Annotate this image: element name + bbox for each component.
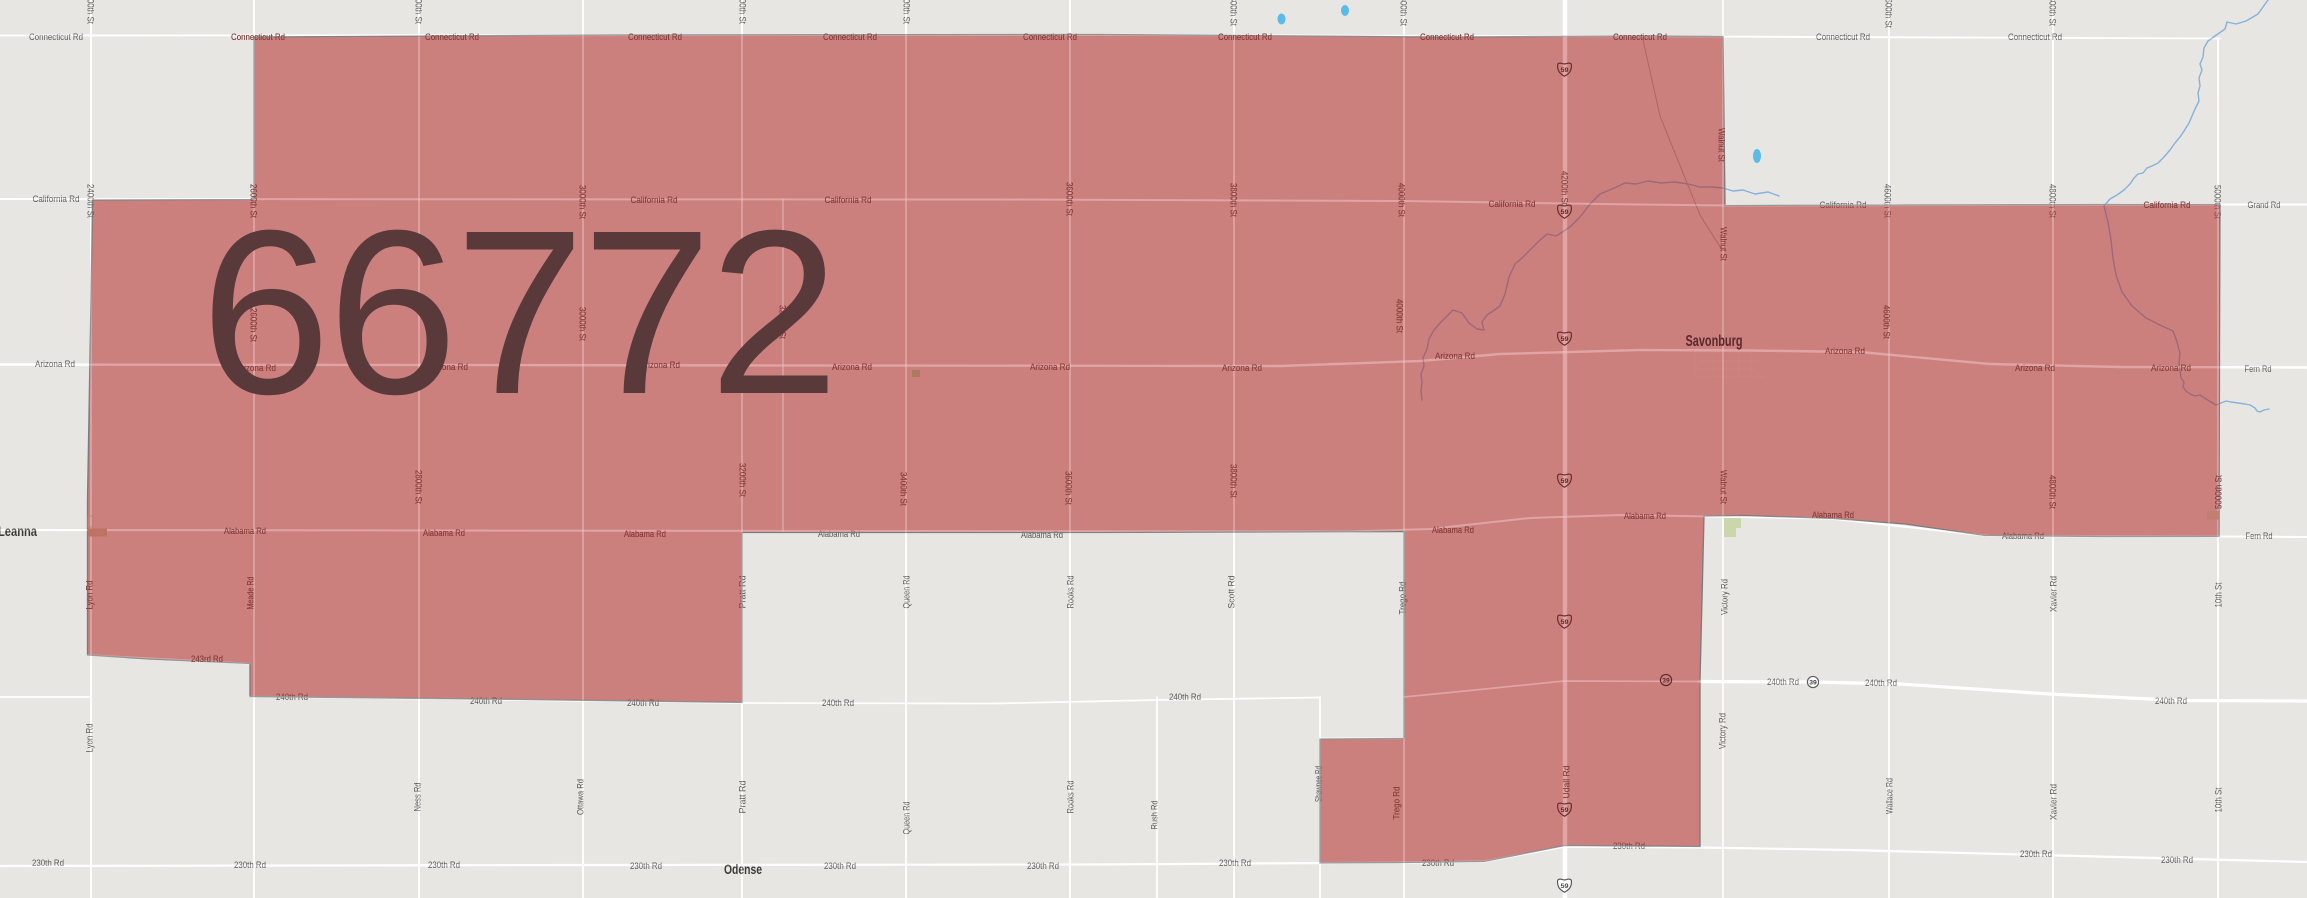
svg-text:4200th St: 4200th St xyxy=(1560,171,1570,205)
svg-text:4000th St: 4000th St xyxy=(1395,299,1405,333)
svg-text:Arizona Rd: Arizona Rd xyxy=(1222,363,1262,373)
svg-text:Alabama Rd: Alabama Rd xyxy=(423,528,465,538)
svg-text:4000th St: 4000th St xyxy=(1397,183,1407,217)
svg-text:Connecticut Rd: Connecticut Rd xyxy=(1613,32,1667,42)
svg-text:59: 59 xyxy=(1561,209,1569,216)
svg-text:4800th St: 4800th St xyxy=(2048,475,2058,509)
svg-text:59: 59 xyxy=(1561,478,1569,485)
svg-text:3200th St: 3200th St xyxy=(738,463,748,497)
svg-text:59: 59 xyxy=(1561,619,1569,626)
svg-text:Lyon Rd: Lyon Rd xyxy=(85,724,95,753)
svg-text:59: 59 xyxy=(1561,336,1569,343)
svg-text:Walnut St: Walnut St xyxy=(1717,128,1727,162)
svg-text:Connecticut Rd: Connecticut Rd xyxy=(29,32,83,42)
svg-text:Arizona Rd: Arizona Rd xyxy=(832,362,872,372)
svg-text:Connecticut Rd: Connecticut Rd xyxy=(1023,32,1077,42)
svg-text:3600th St: 3600th St xyxy=(1065,182,1075,216)
svg-text:Connecticut Rd: Connecticut Rd xyxy=(628,32,682,42)
svg-text:59: 59 xyxy=(1561,67,1569,74)
svg-text:230th Rd: 230th Rd xyxy=(2161,855,2193,865)
svg-text:Walnut St: Walnut St xyxy=(1719,227,1729,261)
svg-text:3800th St: 3800th St xyxy=(1229,183,1239,217)
svg-text:Ottawa Rd: Ottawa Rd xyxy=(576,779,586,815)
svg-text:Connecticut Rd: Connecticut Rd xyxy=(1218,32,1272,42)
svg-text:Alabama Rd: Alabama Rd xyxy=(1624,511,1666,521)
svg-text:Alabama Rd: Alabama Rd xyxy=(224,526,266,536)
svg-text:Arizona Rd: Arizona Rd xyxy=(2015,363,2055,373)
svg-text:5000th St: 5000th St xyxy=(2214,475,2224,509)
svg-text:Alabama Rd: Alabama Rd xyxy=(1812,510,1854,520)
svg-text:Arizona Rd: Arizona Rd xyxy=(1435,351,1475,361)
svg-text:39: 39 xyxy=(1809,680,1817,687)
svg-text:California Rd: California Rd xyxy=(2144,200,2191,210)
svg-text:3400th St: 3400th St xyxy=(899,472,909,506)
svg-text:4600th St: 4600th St xyxy=(1882,305,1892,339)
svg-text:Meade Rd: Meade Rd xyxy=(246,577,256,610)
svg-text:Scott Rd: Scott Rd xyxy=(1227,576,1237,609)
svg-text:59: 59 xyxy=(1561,807,1569,814)
svg-text:Odense: Odense xyxy=(724,861,762,877)
svg-text:Ness Rd: Ness Rd xyxy=(413,783,423,812)
svg-text:Alabama Rd: Alabama Rd xyxy=(624,529,666,539)
svg-text:Connecticut Rd: Connecticut Rd xyxy=(823,32,877,42)
svg-text:Arizona Rd: Arizona Rd xyxy=(2151,363,2191,373)
svg-text:39: 39 xyxy=(1662,678,1670,685)
svg-text:Connecticut Rd: Connecticut Rd xyxy=(231,32,285,42)
svg-text:Lyon Rd: Lyon Rd xyxy=(85,581,95,610)
svg-text:Trego Rd: Trego Rd xyxy=(1392,787,1402,820)
svg-text:Walnut St: Walnut St xyxy=(1719,470,1729,504)
svg-text:California Rd: California Rd xyxy=(1489,199,1536,209)
svg-text:Connecticut Rd: Connecticut Rd xyxy=(1420,32,1474,42)
svg-text:230th Rd: 230th Rd xyxy=(824,861,856,871)
svg-text:3800th St: 3800th St xyxy=(1229,464,1239,498)
svg-text:Victory Rd: Victory Rd xyxy=(1720,579,1730,615)
svg-text:59: 59 xyxy=(1561,883,1569,890)
svg-text:Rush Rd: Rush Rd xyxy=(1150,801,1160,830)
svg-text:Alabama Rd: Alabama Rd xyxy=(1432,525,1474,535)
svg-text:2800th St: 2800th St xyxy=(414,470,424,504)
svg-text:230th Rd: 230th Rd xyxy=(1027,861,1059,871)
svg-text:243rd Rd: 243rd Rd xyxy=(191,654,223,664)
svg-text:Arizona Rd: Arizona Rd xyxy=(1825,346,1865,356)
svg-text:Fern Rd: Fern Rd xyxy=(2245,364,2272,374)
svg-text:Arizona Rd: Arizona Rd xyxy=(1030,362,1070,372)
svg-text:Udall Rd: Udall Rd xyxy=(1562,766,1572,799)
svg-text:66772: 66772 xyxy=(201,181,837,443)
svg-text:Savonburg: Savonburg xyxy=(1686,333,1743,350)
svg-text:Connecticut Rd: Connecticut Rd xyxy=(425,32,479,42)
svg-text:3600th St: 3600th St xyxy=(1064,471,1074,505)
